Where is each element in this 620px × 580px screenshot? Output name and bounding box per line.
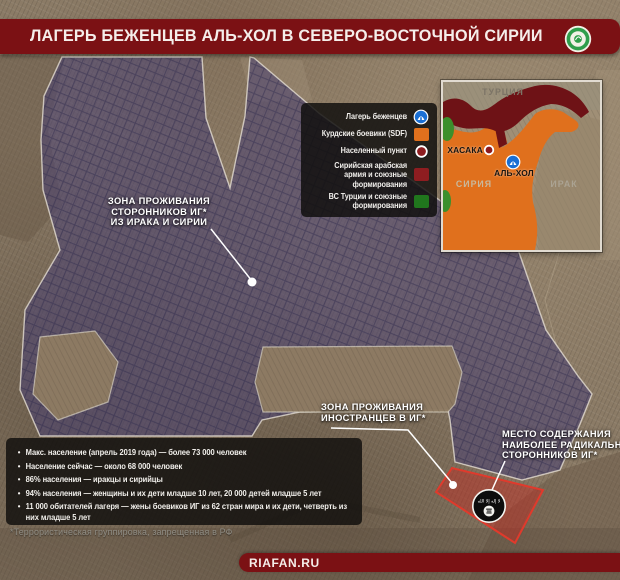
settlement-marker-icon — [413, 144, 429, 158]
isis-flag-icon: لا إله إلا الله — [471, 488, 507, 524]
page-title: ЛАГЕРЬ БЕЖЕНЦЕВ АЛЬ-ХОЛ В СЕВЕРО-ВОСТОЧН… — [0, 27, 543, 46]
svg-text:لا إله إلا الله: لا إله إلا الله — [478, 500, 501, 505]
inset-map-shapes — [443, 82, 600, 250]
sdf-area-icon — [413, 127, 429, 141]
infographic-root: ЛАГЕРЬ БЕЖЕНЦЕВ АЛЬ-ХОЛ В СЕВЕРО-ВОСТОЧН… — [0, 0, 620, 580]
syrian-army-area-icon — [413, 168, 429, 182]
inset-city-alhol: АЛЬ-ХОЛ — [486, 168, 542, 178]
stat-max-population: Макс. население (апрель 2019 года) — бол… — [16, 447, 350, 458]
inset-country-syria: СИРИЯ — [449, 179, 499, 189]
legend-item-syrian-army: Сирийская арабская армия и союзные форми… — [307, 161, 429, 189]
fan-logo-icon[interactable] — [564, 25, 592, 53]
label-zone-foreigners: ЗОНА ПРОЖИВАНИЯ ИНОСТРАНЦЕВ В ИГ* — [321, 402, 413, 423]
footer-bar: RIAFAN.RU — [239, 553, 620, 572]
terrorist-org-footnote: *Террористическая группировка, запрещенн… — [10, 527, 232, 537]
legend-item-turkey: ВС Турции и союзные формирования — [307, 192, 429, 211]
legend-box: Лагерь беженцев Курдские боевики (SDF) Н… — [301, 103, 437, 217]
stat-foreign-wives: 11 000 обитателей лагеря — жены боевиков… — [16, 501, 350, 523]
label-zone-radicals: МЕСТО СОДЕРЖАНИЯ НАИБОЛЕЕ РАДИКАЛЬНЫХ СТ… — [502, 429, 620, 461]
legend-item-settlement: Населенный пункт — [307, 144, 429, 158]
stat-nationality-share: 86% населения — иракцы и сирийцы — [16, 474, 350, 485]
footer-site-link[interactable]: RIAFAN.RU — [239, 556, 320, 570]
inset-country-turkey: ТУРЦИЯ — [471, 87, 535, 97]
inset-map: ТУРЦИЯ СИРИЯ ИРАК ХАСАКА АЛЬ-ХОЛ — [441, 80, 602, 252]
legend-item-sdf: Курдские боевики (SDF) — [307, 127, 429, 141]
turkey-area-icon — [413, 194, 429, 208]
refugee-camp-marker-icon — [413, 110, 429, 124]
stat-current-population: Население сейчас — около 68 000 человек — [16, 461, 350, 472]
inset-city-hasaka: ХАСАКА — [443, 145, 483, 155]
stat-women-children-share: 94% населения — женщины и их дети младше… — [16, 488, 350, 499]
legend-item-camp: Лагерь беженцев — [307, 110, 429, 124]
inset-country-iraq: ИРАК — [539, 179, 589, 189]
inset-hasaka-marker — [484, 145, 494, 155]
stats-box: Макс. население (апрель 2019 года) — бол… — [6, 438, 362, 525]
label-zone-iraq-syria: ЗОНА ПРОЖИВАНИЯ СТОРОННИКОВ ИГ* ИЗ ИРАКА… — [94, 196, 224, 228]
stats-list: Макс. население (апрель 2019 года) — бол… — [16, 447, 350, 523]
header-bar: ЛАГЕРЬ БЕЖЕНЦЕВ АЛЬ-ХОЛ В СЕВЕРО-ВОСТОЧН… — [0, 19, 620, 54]
